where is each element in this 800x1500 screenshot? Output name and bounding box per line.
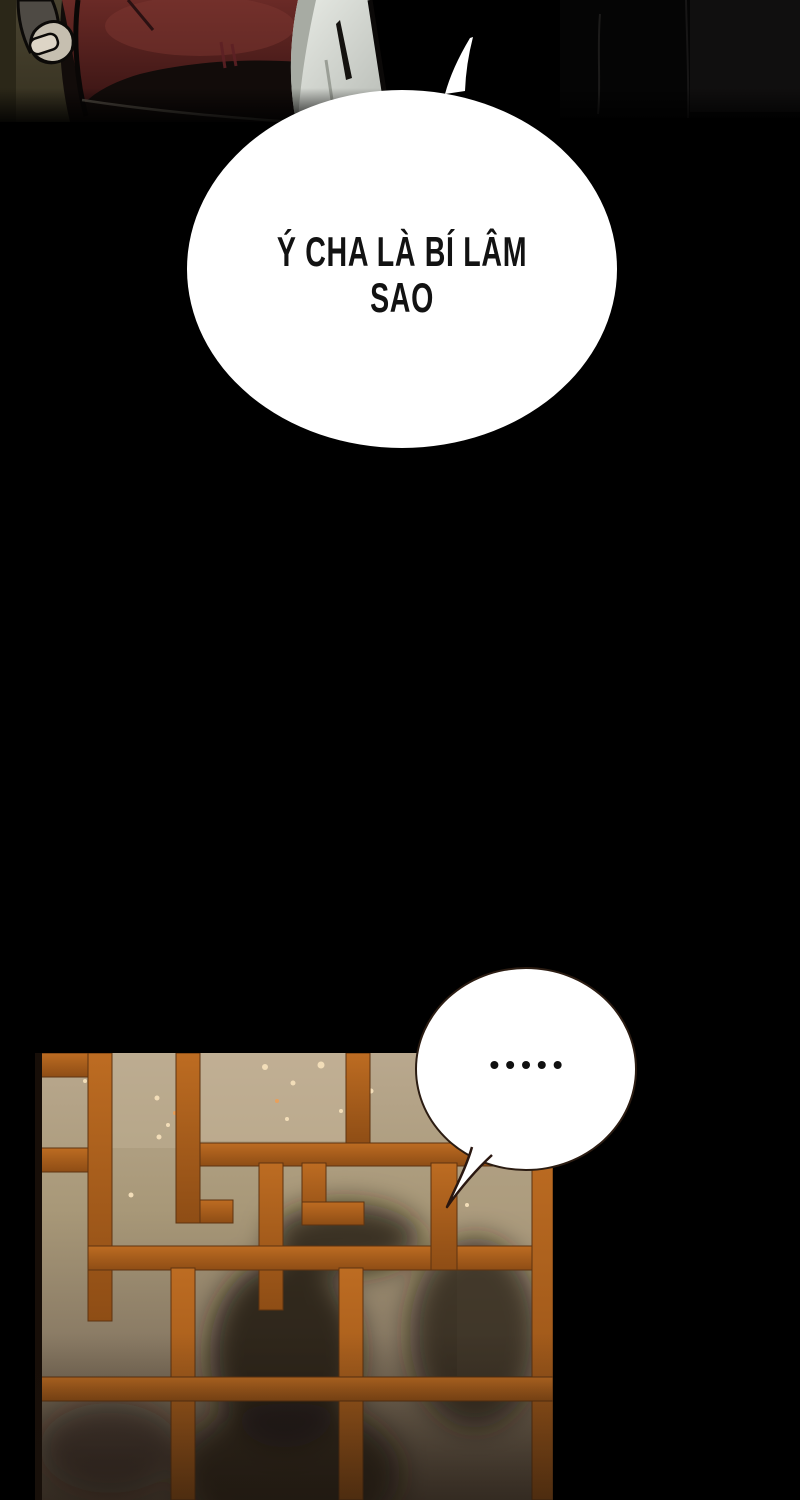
speech-text-line1: Ý CHA LÀ BÍ LÂM bbox=[277, 229, 527, 275]
comic-page: Ý CHA LÀ BÍ LÂM SAO bbox=[0, 0, 800, 1500]
speech-text-line2: SAO bbox=[277, 275, 527, 321]
speech-bubble-main: Ý CHA LÀ BÍ LÂM SAO bbox=[187, 90, 617, 448]
speech-text: Ý CHA LÀ BÍ LÂM SAO bbox=[277, 229, 527, 321]
ellipsis-dots: ••••• bbox=[483, 1049, 568, 1081]
photo-bottom-fade bbox=[35, 1333, 553, 1500]
speech-bubble-ellipsis-tail bbox=[430, 1120, 510, 1220]
